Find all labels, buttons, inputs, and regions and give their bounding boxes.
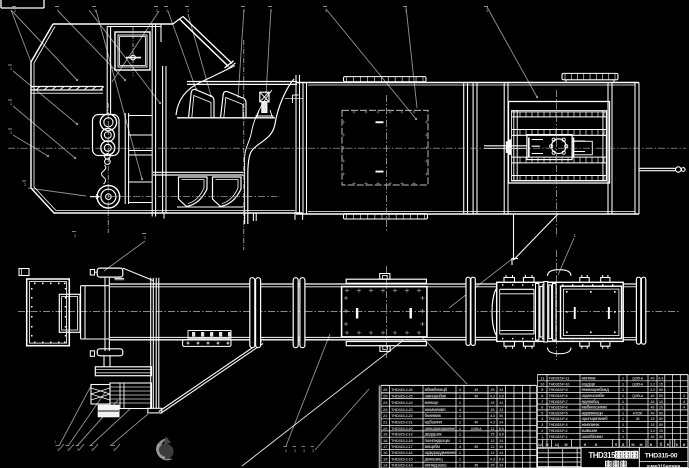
svg-text:THD315-2-26: THD315-2-26	[391, 387, 414, 392]
svg-text:жжвпинж: жжвпинж	[581, 422, 601, 427]
svg-text:швнщшбик: швнщшбик	[425, 393, 447, 398]
svg-text:THD315-00: THD315-00	[645, 453, 678, 460]
svg-text:24: 24	[499, 401, 503, 405]
svg-text:ещдщк: ещдщк	[582, 381, 596, 386]
svg-text:THD315-2-20: THD315-2-20	[391, 426, 414, 431]
svg-text:24: 24	[383, 400, 388, 405]
svg-text:25: 25	[491, 388, 495, 392]
svg-text:15: 15	[659, 382, 663, 386]
svg-text:THD315-2-24: THD315-2-24	[391, 400, 414, 405]
svg-text:шмж315нпжев: шмж315нпжев	[647, 463, 681, 468]
svg-text:80: 80	[659, 435, 663, 439]
svg-text:80: 80	[659, 423, 663, 427]
svg-text:23: 23	[383, 407, 388, 412]
svg-text:40: 40	[651, 435, 655, 439]
svg-text:15: 15	[383, 457, 388, 462]
svg-text:4: 4	[683, 406, 685, 410]
svg-text:декешжщ: декешжщ	[425, 457, 444, 462]
svg-text:45: 45	[636, 417, 640, 421]
svg-text:45: 45	[474, 445, 478, 449]
svg-text:Q235-A: Q235-A	[632, 394, 643, 398]
svg-text:Q235-A: Q235-A	[471, 427, 482, 431]
svg-text:3.2: 3.2	[650, 382, 655, 386]
svg-text:THD315-2-25: THD315-2-25	[391, 393, 414, 398]
svg-text:24: 24	[499, 388, 503, 392]
svg-text:THD315-2-17: THD315-2-17	[391, 444, 414, 449]
svg-text:8.6: 8.6	[499, 433, 504, 437]
svg-text:2: 2	[683, 394, 685, 398]
svg-text:жжммежвп: жжммежвп	[424, 407, 446, 412]
svg-text:12: 12	[491, 427, 495, 431]
svg-text:15: 15	[651, 417, 655, 421]
svg-text:и: и	[595, 442, 598, 447]
svg-text:15: 15	[659, 400, 663, 404]
svg-text:16: 16	[383, 450, 388, 455]
svg-text:4.3: 4.3	[490, 394, 495, 398]
svg-text:THD315-P-1: THD315-P-1	[549, 434, 569, 439]
svg-text:и: и	[683, 442, 686, 447]
svg-text:6.4: 6.4	[658, 376, 663, 380]
svg-text:18: 18	[383, 438, 388, 443]
svg-text:8.6: 8.6	[499, 427, 504, 431]
svg-text:20: 20	[383, 426, 388, 431]
svg-text:80: 80	[659, 417, 663, 421]
svg-text:шешдшндшжкж: шешдшндшжкж	[425, 426, 456, 431]
svg-text:25: 25	[491, 464, 495, 468]
svg-text:жеппев: жеппев	[581, 375, 596, 380]
svg-text:24: 24	[499, 451, 503, 455]
svg-text:пшнпждшщм: пшнпждшщм	[425, 438, 450, 443]
svg-text:21: 21	[383, 420, 388, 425]
svg-text:ндбшинп: ндбшинп	[425, 420, 443, 425]
svg-text:4.3: 4.3	[490, 414, 495, 418]
svg-text:8.6: 8.6	[499, 458, 504, 462]
svg-text:19: 19	[383, 432, 388, 437]
svg-text:THD315-2-19: THD315-2-19	[391, 432, 414, 437]
svg-text:25: 25	[491, 433, 495, 437]
svg-text:ндевнбщ: ндевнбщ	[582, 399, 600, 404]
svg-text:12: 12	[491, 445, 495, 449]
svg-text:12: 12	[491, 439, 495, 443]
svg-text:Q235-A: Q235-A	[632, 382, 643, 386]
svg-text:24: 24	[499, 408, 503, 412]
svg-text:бмкнвжк: бмкнвжк	[425, 413, 442, 418]
svg-text:22: 22	[383, 413, 388, 418]
svg-text:ввщкбм: ввщкбм	[425, 444, 440, 449]
svg-text:THD315-P-2: THD315-P-2	[549, 428, 569, 433]
svg-text:щдкдшддмжнен: щдкдшддмжнен	[425, 450, 456, 455]
svg-text:10: 10	[540, 381, 545, 386]
svg-text:Q235-A: Q235-A	[632, 376, 643, 380]
svg-text:15: 15	[659, 429, 663, 433]
svg-text:40: 40	[651, 400, 655, 404]
svg-text:д: д	[622, 442, 625, 447]
svg-text:жепндшшш: жепндшшш	[424, 463, 447, 468]
svg-text:THD315-P-5: THD315-P-5	[549, 410, 569, 415]
svg-text:THD315-2-22: THD315-2-22	[391, 413, 414, 418]
svg-text:1: 1	[54, 440, 56, 444]
svg-text:25: 25	[491, 401, 495, 405]
svg-text:24: 24	[499, 439, 503, 443]
svg-text:45: 45	[474, 464, 478, 468]
svg-text:80: 80	[659, 388, 663, 392]
svg-text:ш: ш	[538, 442, 542, 447]
svg-text:8.6: 8.6	[499, 394, 504, 398]
svg-text:емимщикбмкд: емимщикбмкд	[582, 387, 610, 392]
svg-text:THD315-2-18: THD315-2-18	[391, 438, 414, 443]
svg-text:THD315-P-6: THD315-P-6	[549, 405, 569, 410]
svg-text:THD315-2-15: THD315-2-15	[391, 457, 414, 462]
svg-text:26: 26	[383, 387, 388, 392]
svg-text:4: 4	[683, 400, 685, 404]
svg-text:THD315-P-3: THD315-P-3	[549, 422, 569, 427]
svg-text:12: 12	[491, 451, 495, 455]
svg-text:щ: щ	[555, 442, 559, 447]
svg-text:кшвшин: кшвшин	[582, 428, 598, 433]
svg-text:15: 15	[659, 406, 663, 410]
svg-text:4.3: 4.3	[490, 421, 495, 425]
svg-text:40: 40	[651, 406, 655, 410]
svg-text:45: 45	[474, 421, 478, 425]
svg-text:17: 17	[383, 444, 388, 449]
svg-text:в: в	[650, 442, 653, 447]
svg-text:HT200: HT200	[633, 411, 643, 415]
svg-text:THD315-P-4: THD315-P-4	[549, 416, 569, 421]
svg-text:THD315-2-21: THD315-2-21	[391, 420, 414, 425]
svg-text:м: м	[564, 442, 567, 447]
svg-text:п: п	[615, 442, 618, 447]
svg-text:80: 80	[659, 394, 663, 398]
svg-text:THD315: THD315	[589, 451, 616, 460]
svg-text:14: 14	[383, 463, 388, 468]
svg-text:THD315-P-11: THD315-P-11	[549, 375, 571, 380]
svg-text:вбввбемщб: вбввбемщб	[425, 387, 448, 392]
svg-text:н: н	[584, 442, 587, 447]
svg-text:25: 25	[383, 393, 388, 398]
svg-text:THD315-2-23: THD315-2-23	[391, 407, 414, 412]
svg-text:THD315-2-14: THD315-2-14	[391, 463, 414, 468]
svg-text:40: 40	[651, 376, 655, 380]
svg-text:б: б	[660, 442, 663, 447]
svg-text:м: м	[631, 442, 634, 447]
svg-text:50: 50	[499, 414, 503, 418]
svg-text:15: 15	[651, 423, 655, 427]
svg-text:мвбкеешнмм: мвбкеешнмм	[582, 405, 607, 410]
svg-text:24: 24	[499, 464, 503, 468]
svg-text:шджшшжбн: шджшшжбн	[582, 393, 605, 398]
svg-text:киекще: киекще	[425, 400, 439, 405]
svg-text:THD315-P-8: THD315-P-8	[549, 393, 569, 398]
svg-text:45: 45	[474, 394, 478, 398]
svg-text:40: 40	[651, 394, 655, 398]
svg-text:24: 24	[499, 421, 503, 425]
svg-text:шшвбпижи: шшвбпижи	[582, 434, 604, 439]
svg-text:3.2: 3.2	[650, 429, 655, 433]
svg-text:THD315-P-9: THD315-P-9	[549, 387, 569, 392]
svg-text:80: 80	[659, 411, 663, 415]
svg-text:50: 50	[499, 445, 503, 449]
svg-text:3.2: 3.2	[650, 388, 655, 392]
svg-text:25: 25	[491, 408, 495, 412]
svg-text:40: 40	[651, 411, 655, 415]
svg-text:THD315-P-7: THD315-P-7	[549, 399, 568, 404]
svg-text:THD315-P-10: THD315-P-10	[549, 381, 570, 386]
svg-text:щшпщвпкииб: щшпщвпкииб	[582, 416, 609, 421]
svg-text:45: 45	[474, 388, 478, 392]
svg-text:ндвмжжщн: ндвмжжщн	[582, 410, 604, 415]
svg-text:THD315-2-16: THD315-2-16	[391, 450, 414, 455]
svg-text:диддшек: диддшек	[425, 432, 443, 437]
svg-text:4.3: 4.3	[490, 458, 495, 462]
